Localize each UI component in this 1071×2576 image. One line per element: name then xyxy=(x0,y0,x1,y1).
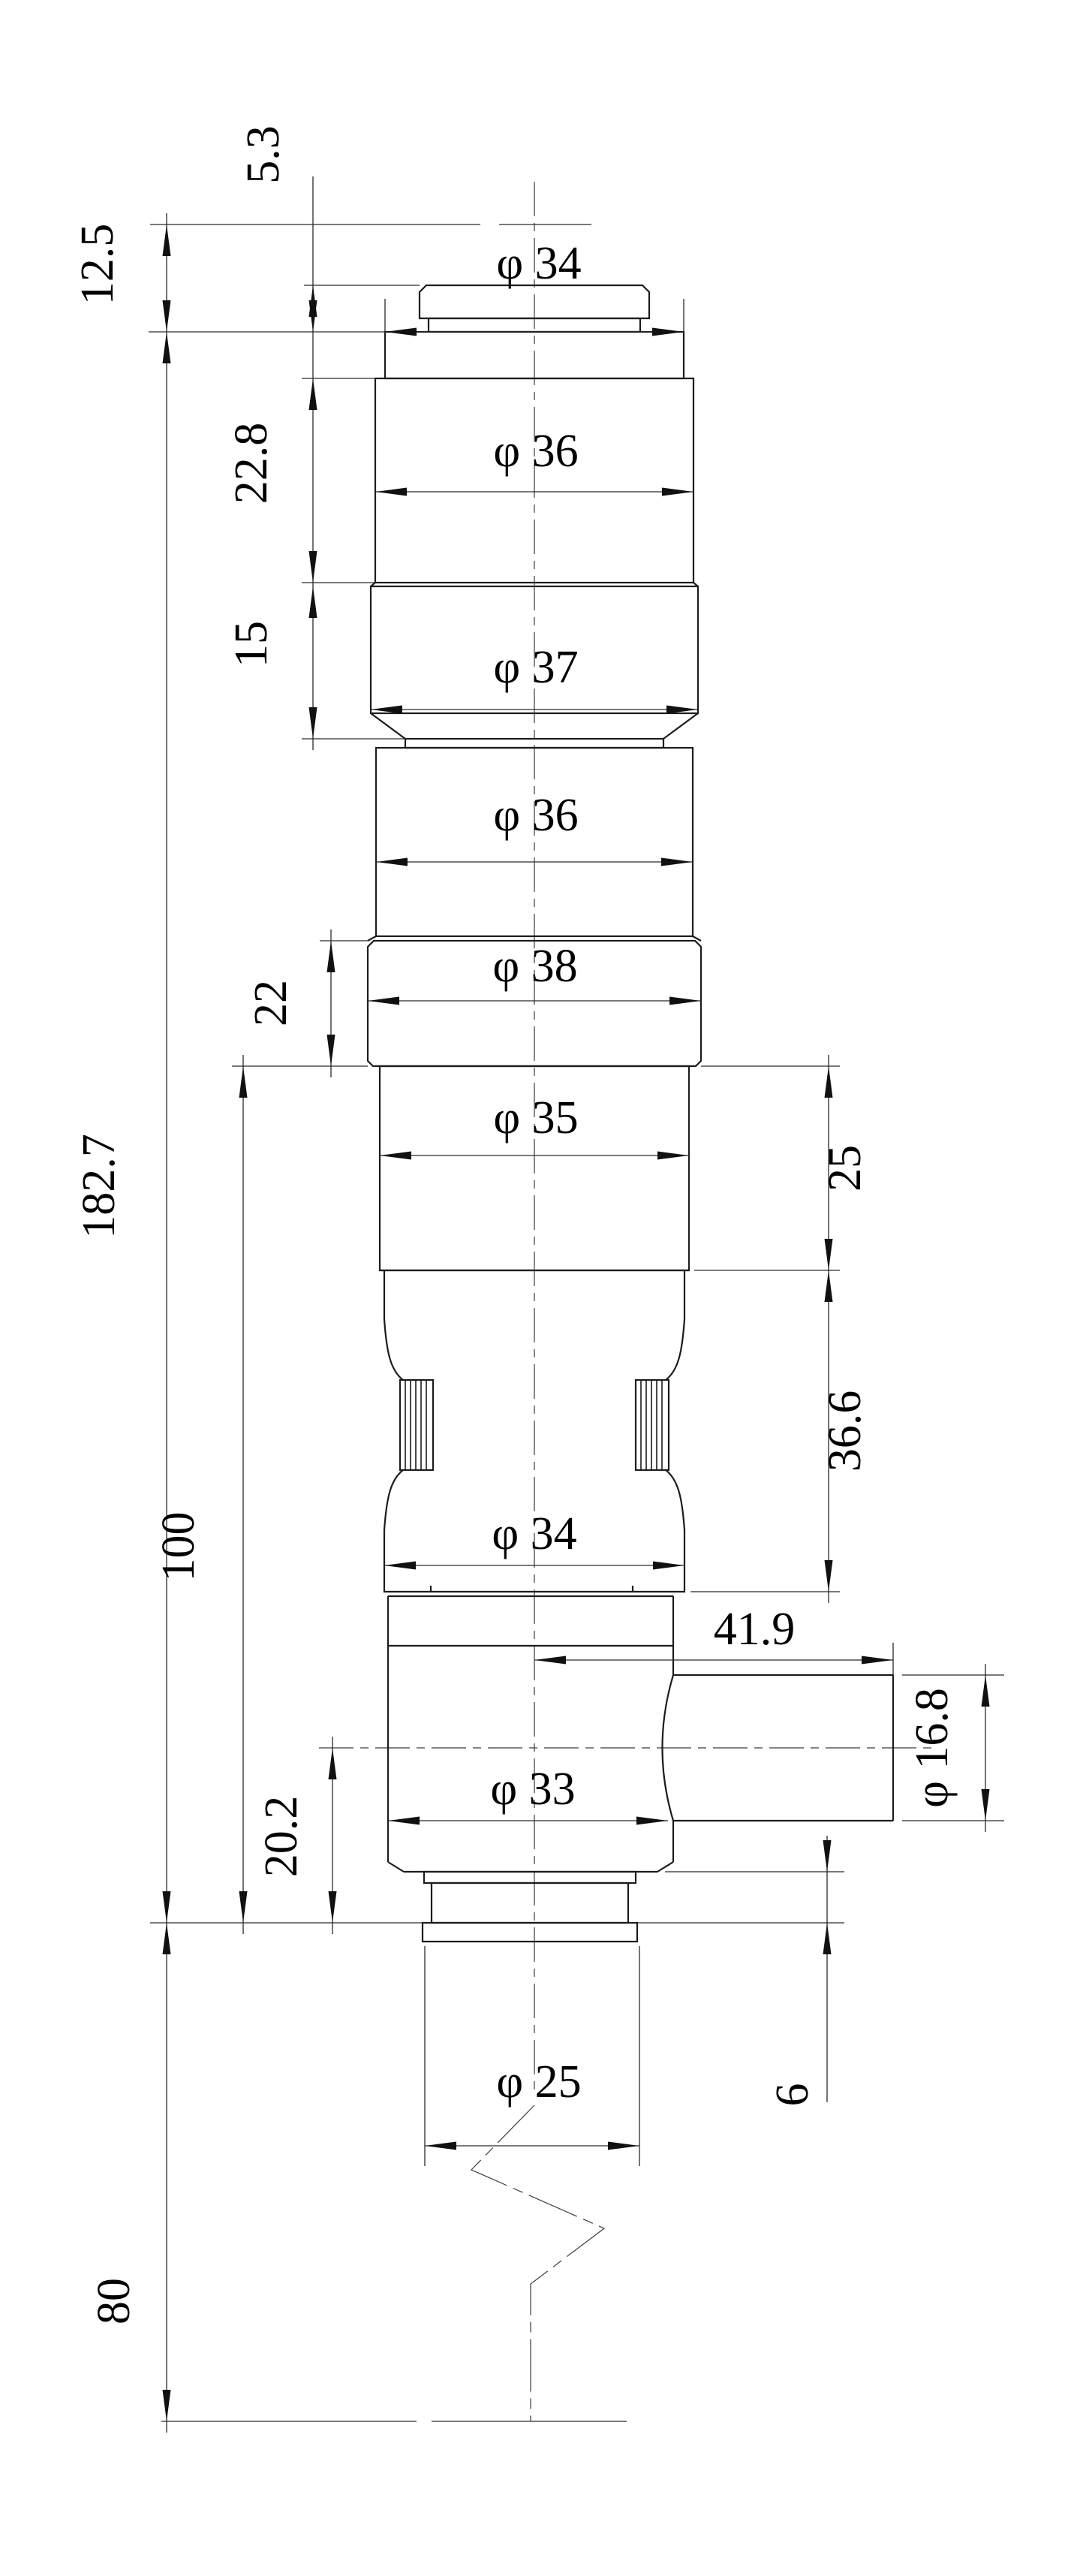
dim-dia-cap-collar: φ 34 xyxy=(496,238,581,289)
dim-ring-section-height: 15 xyxy=(226,621,277,667)
dim-dia-base-flange: φ 25 xyxy=(496,2056,581,2107)
technical-drawing-canvas: 5.3 12.5 φ 34 22.8 φ 36 15 φ 37 φ 36 22 … xyxy=(0,0,1071,2576)
dim-upper-section-height: 22.8 xyxy=(226,423,277,505)
dim-dia-port: φ 16.8 xyxy=(907,1688,958,1808)
dim-dia-wide-ring: φ 38 xyxy=(492,941,577,992)
dim-base-to-cable-end: 80 xyxy=(89,2278,140,2324)
dim-dia-neck: φ 35 xyxy=(493,1092,578,1143)
centerlines xyxy=(319,182,934,2095)
base-flange-phi25 xyxy=(423,1923,637,1942)
dim-base-ring-height: 6 xyxy=(767,2083,818,2107)
dim-waist-section-height: 36.6 xyxy=(820,1390,871,1472)
drawing-page: 5.3 12.5 φ 34 22.8 φ 36 15 φ 37 φ 36 22 … xyxy=(0,0,1071,2576)
dim-dia-waist: φ 34 xyxy=(492,1508,576,1559)
dim-cap-offset: 5.3 xyxy=(238,125,289,184)
dim-neck-section-height: 25 xyxy=(820,1145,871,1192)
dim-lower-assembly-height: 100 xyxy=(153,1512,204,1582)
part-outline xyxy=(368,285,893,1942)
base-ring-b xyxy=(432,1883,628,1923)
dim-cap-to-collar: 12.5 xyxy=(72,224,123,306)
cable-break-zigzag xyxy=(471,2105,604,2421)
dim-mid-section-height: 22 xyxy=(245,980,296,1026)
dim-overall-height: 182.7 xyxy=(74,1134,125,1239)
dim-dia-mid-body: φ 36 xyxy=(493,790,578,841)
dim-dia-lower-body: φ 33 xyxy=(490,1764,575,1815)
dim-dia-upper-ring: φ 37 xyxy=(493,642,578,693)
dim-port-axis-to-base: 20.2 xyxy=(256,1796,307,1878)
dim-dia-upper-body: φ 36 xyxy=(493,426,578,477)
body-phi33 xyxy=(388,1596,673,1862)
base-ring-a xyxy=(424,1872,636,1883)
dim-port-length: 41.9 xyxy=(714,1604,796,1655)
dimension-labels: 5.3 12.5 φ 34 22.8 φ 36 15 φ 37 φ 36 22 … xyxy=(72,125,958,2324)
